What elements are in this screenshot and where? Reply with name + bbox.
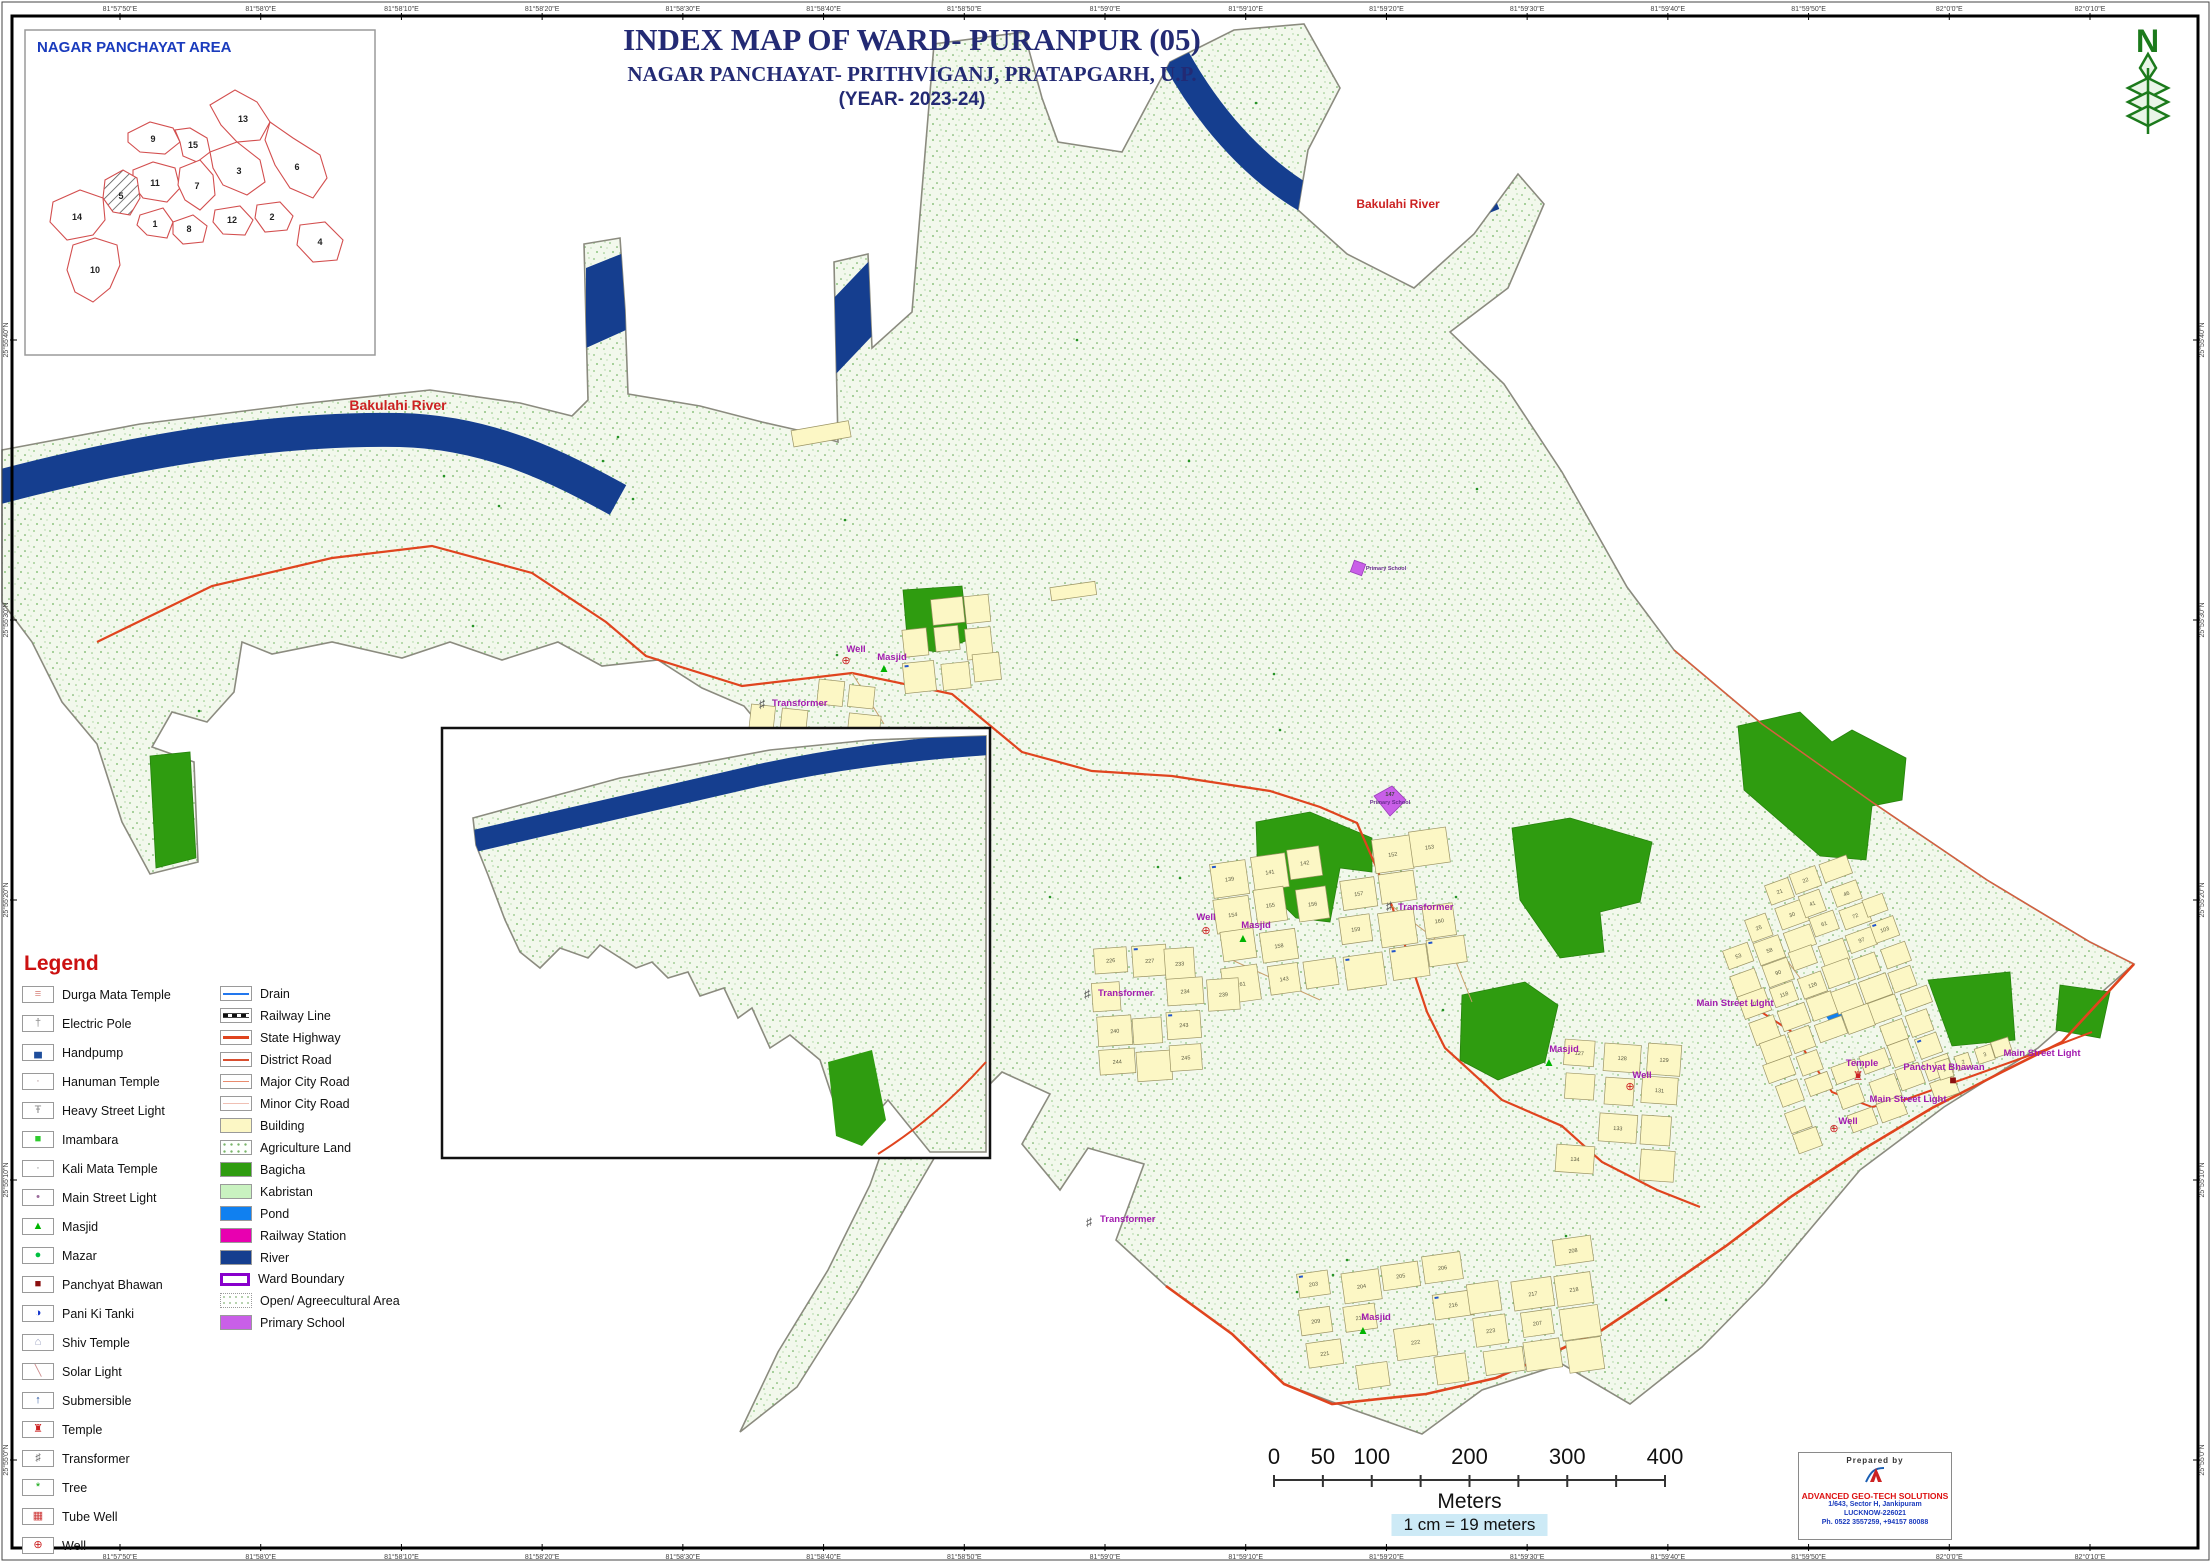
tree-dot bbox=[19, 1069, 22, 1072]
graticule-label-top: 81°57'50"E bbox=[103, 5, 138, 13]
legend-item-label: Tube Well bbox=[62, 1510, 118, 1524]
graticule-label-bottom: 81°59'0"E bbox=[1090, 1553, 1121, 1561]
legend-item: †Electric Pole bbox=[22, 1015, 220, 1032]
parcel-number: 128 bbox=[1617, 1056, 1627, 1063]
map-year: (YEAR- 2023-24) bbox=[412, 89, 1412, 111]
parcel-number: 221 bbox=[1320, 1351, 1330, 1358]
legend-item: Kabristan bbox=[220, 1184, 416, 1199]
legend-item-label: Open/ Agreecultural Area bbox=[260, 1294, 400, 1308]
tree-icon: * bbox=[22, 1479, 54, 1496]
tree-dot bbox=[467, 1420, 470, 1423]
legend-item-label: Pani Ki Tanki bbox=[62, 1307, 134, 1321]
detail-inset bbox=[442, 728, 990, 1158]
tree-dot bbox=[198, 710, 201, 713]
legend-item: ▲Masjid bbox=[22, 1218, 220, 1235]
overview-ward-number: 15 bbox=[188, 140, 198, 150]
tree-dot bbox=[625, 675, 628, 678]
transformer-icon: ♯ bbox=[759, 697, 765, 711]
feature-label: Transformer bbox=[1098, 988, 1154, 999]
mazar-icon: ● bbox=[22, 1247, 54, 1264]
imambara-icon: ■ bbox=[22, 1131, 54, 1148]
legend-item: River bbox=[220, 1250, 416, 1265]
legend-item-label: Bagicha bbox=[260, 1163, 305, 1177]
overview-ward-number: 10 bbox=[90, 265, 100, 275]
parcel-number: 206 bbox=[1438, 1265, 1448, 1272]
tree-dot bbox=[1830, 566, 1833, 569]
building-parcel bbox=[1564, 1073, 1595, 1100]
main-street-light-icon: • bbox=[22, 1189, 54, 1206]
river-label: Bakulahi River bbox=[349, 397, 447, 413]
parcel-number: 226 bbox=[1106, 958, 1116, 965]
map-title: INDEX MAP OF WARD- PURANPUR (05) bbox=[412, 22, 1412, 58]
tree-dot bbox=[2061, 303, 2064, 306]
legend-item: Ward Boundary bbox=[220, 1272, 416, 1286]
durga-mata-temple-icon: ≡ bbox=[22, 986, 54, 1003]
overview-ward-number: 14 bbox=[72, 212, 82, 222]
feature-label: Transformer bbox=[1398, 902, 1454, 913]
legend-item-label: Railway Line bbox=[260, 1009, 331, 1023]
legend-item-label: Hanuman Temple bbox=[62, 1075, 160, 1089]
legend-item-label: Transformer bbox=[62, 1452, 130, 1466]
feature-label: Main Street Light bbox=[1696, 998, 1774, 1009]
legend-item-label: District Road bbox=[260, 1053, 332, 1067]
graticule-label-top: 82°0'10"E bbox=[2075, 5, 2106, 13]
parcel-number: 205 bbox=[1396, 1273, 1406, 1280]
overview-ward-number: 11 bbox=[150, 178, 160, 188]
tree-dot bbox=[1665, 1299, 1668, 1302]
tree-dot bbox=[498, 505, 501, 508]
school-icon: ■ bbox=[1355, 562, 1360, 572]
river-swatch bbox=[220, 1250, 252, 1265]
tree-dot bbox=[1212, 1413, 1215, 1416]
railway-swatch bbox=[220, 1008, 252, 1023]
well-icon: ⊕ bbox=[1625, 1081, 1634, 1093]
legend-item-label: Temple bbox=[62, 1423, 102, 1437]
tree-dot bbox=[1476, 488, 1479, 491]
graticule-label-top: 81°59'10"E bbox=[1228, 5, 1263, 13]
building-swatch bbox=[220, 1118, 252, 1133]
legend-item: Railway Station bbox=[220, 1228, 416, 1243]
feature-label: Masjid bbox=[1241, 920, 1271, 931]
tree-dot bbox=[1455, 896, 1458, 899]
transformer-icon: ♯ bbox=[1086, 1215, 1092, 1229]
graticule-label-top: 81°58'10"E bbox=[384, 5, 419, 13]
graticule-label-top: 81°59'40"E bbox=[1651, 5, 1686, 13]
legend-item: ·Hanuman Temple bbox=[22, 1073, 220, 1090]
tree-dot bbox=[1273, 673, 1276, 676]
well-icon: ⊕ bbox=[841, 655, 850, 667]
parcel-number: 133 bbox=[1613, 1126, 1623, 1133]
graticule-label-top: 81°59'30"E bbox=[1510, 5, 1545, 13]
legend-item: ⊕Well bbox=[22, 1537, 220, 1554]
overview-ward-number: 12 bbox=[227, 215, 237, 225]
legend-item-label: Main Street Light bbox=[62, 1191, 157, 1205]
legend-item: ·Kali Mata Temple bbox=[22, 1160, 220, 1177]
legend-item-label: Building bbox=[260, 1119, 304, 1133]
feature-label: Transformer bbox=[772, 698, 828, 709]
tree-dot bbox=[7, 704, 10, 707]
legend-item: ◑Pani Ki Tanki bbox=[22, 1305, 220, 1322]
masjid-icon: ▲ bbox=[22, 1218, 54, 1235]
legend-item: ≡Durga Mata Temple bbox=[22, 986, 220, 1003]
company-address-1: 1/643, Sector H, Jankipuram bbox=[1801, 1501, 1949, 1510]
primaryschool-swatch bbox=[220, 1315, 252, 1330]
tree-dot bbox=[1497, 305, 1500, 308]
tree-dot bbox=[1981, 440, 1984, 443]
legend-item: Primary School bbox=[220, 1315, 416, 1330]
building-parcel bbox=[1378, 909, 1418, 948]
overview-ward-number: 13 bbox=[238, 114, 248, 124]
tree-dot bbox=[1742, 237, 1745, 240]
district-swatch bbox=[220, 1052, 252, 1067]
overview-ward-number: 5 bbox=[118, 191, 123, 201]
tree-dot bbox=[632, 498, 635, 501]
overview-ward-number: 4 bbox=[317, 237, 322, 247]
building-parcel bbox=[1483, 1346, 1525, 1375]
shiv-temple-icon: ⌂ bbox=[22, 1334, 54, 1351]
legend-item-label: Drain bbox=[260, 987, 290, 1001]
legend-item-label: Solar Light bbox=[62, 1365, 122, 1379]
feature-label: Well bbox=[1632, 1070, 1651, 1081]
feature-label: Temple bbox=[1846, 1058, 1879, 1069]
transformer-icon: ♯ bbox=[1386, 899, 1392, 913]
building-parcel bbox=[1566, 1337, 1605, 1374]
tree-dot bbox=[1192, 1314, 1195, 1317]
legend-item: ♯Transformer bbox=[22, 1450, 220, 1467]
graticule-label-top: 81°59'0"E bbox=[1090, 5, 1121, 13]
well-icon: ⊕ bbox=[1829, 1123, 1838, 1135]
tree-dot bbox=[602, 460, 605, 463]
tree-dot bbox=[529, 1267, 532, 1270]
handpump-icon bbox=[1168, 1014, 1172, 1016]
solar-light-icon: ╲ bbox=[22, 1363, 54, 1380]
tree-dot bbox=[1033, 1167, 1036, 1170]
legend-item: ╲Solar Light bbox=[22, 1363, 220, 1380]
parcel-number: 143 bbox=[1279, 976, 1289, 983]
building-parcel bbox=[1132, 1017, 1163, 1045]
parcel-number: 129 bbox=[1659, 1057, 1669, 1064]
legend-item: ■Imambara bbox=[22, 1131, 220, 1148]
building-parcel bbox=[1559, 1305, 1602, 1341]
tree-dot bbox=[1924, 345, 1927, 348]
feature-label: 147 bbox=[1385, 792, 1394, 798]
temple-icon: ♜ bbox=[1853, 1069, 1864, 1083]
building-parcel bbox=[1523, 1338, 1563, 1372]
legend-item-label: Kabristan bbox=[260, 1185, 313, 1199]
building-parcel bbox=[941, 661, 971, 690]
building-parcel bbox=[1434, 1353, 1469, 1385]
masjid-icon: ▲ bbox=[878, 661, 890, 675]
parcel-number: 243 bbox=[1179, 1023, 1189, 1030]
scale-tick-label: 300 bbox=[1549, 1444, 1586, 1469]
tree-dot bbox=[626, 197, 629, 200]
tree-dot bbox=[1898, 507, 1901, 510]
feature-label: Well bbox=[1196, 912, 1215, 923]
river-label: Bakulahi River bbox=[1356, 197, 1440, 211]
panchyat-icon: ■ bbox=[1949, 1073, 1956, 1087]
building-parcel bbox=[1303, 958, 1339, 989]
tree-dot bbox=[1834, 706, 1837, 709]
parcel-number: 244 bbox=[1113, 1059, 1123, 1066]
graticule-label-top: 81°58'40"E bbox=[806, 5, 841, 13]
building-parcel bbox=[972, 652, 1001, 682]
masjid-icon: ▲ bbox=[1543, 1055, 1555, 1069]
legend-item-label: Shiv Temple bbox=[62, 1336, 130, 1350]
tree-dot bbox=[1774, 129, 1777, 132]
parcel-number: 234 bbox=[1180, 989, 1190, 996]
parcel-number: 217 bbox=[1528, 1291, 1538, 1298]
scale-tick-label: 50 bbox=[1311, 1444, 1335, 1469]
legend-item-label: Durga Mata Temple bbox=[62, 988, 171, 1002]
graticule-label-bottom: 81°59'40"E bbox=[1651, 1553, 1686, 1561]
electric-pole-icon: † bbox=[22, 1015, 54, 1032]
parcel-number: 240 bbox=[1110, 1029, 1120, 1036]
kabristan-swatch bbox=[220, 1184, 252, 1199]
graticule-label-left: 25°55'10"N bbox=[2, 1162, 10, 1197]
legend-item: Minor City Road bbox=[220, 1096, 416, 1111]
legend-item: Bagicha bbox=[220, 1162, 416, 1177]
legend-item-label: Submersible bbox=[62, 1394, 131, 1408]
building-parcel bbox=[1356, 1361, 1391, 1389]
graticule-label-top: 81°59'50"E bbox=[1791, 5, 1826, 13]
railstation-swatch bbox=[220, 1228, 252, 1243]
building-parcel bbox=[1378, 870, 1417, 904]
scale-bar: 050100200300400Meters1 cm = 19 meters bbox=[1248, 1438, 1728, 1540]
open-swatch bbox=[220, 1293, 252, 1308]
graticule-label-left: 25°55'20"N bbox=[2, 882, 10, 917]
pond-swatch bbox=[220, 1206, 252, 1221]
legend-item-label: Kali Mata Temple bbox=[62, 1162, 158, 1176]
parcel-number: 208 bbox=[1568, 1248, 1578, 1255]
legend-item-label: State Highway bbox=[260, 1031, 341, 1045]
parcel-number: 155 bbox=[1266, 903, 1276, 910]
graticule-label-bottom: 81°58'50"E bbox=[947, 1553, 982, 1561]
overview-ward-number: 9 bbox=[150, 134, 155, 144]
legend-item-label: Heavy Street Light bbox=[62, 1104, 165, 1118]
legend-item: Drain bbox=[220, 986, 416, 1001]
parcel-number: 227 bbox=[1145, 958, 1155, 965]
company-phone: Ph. 0522 3557259, +94157 80088 bbox=[1801, 1519, 1949, 1528]
tree-dot bbox=[2106, 1279, 2109, 1282]
scale-tick-label: 400 bbox=[1647, 1444, 1684, 1469]
legend-item-label: Imambara bbox=[62, 1133, 118, 1147]
legend-item-label: Agriculture Land bbox=[260, 1141, 351, 1155]
parcel-number: 233 bbox=[1175, 961, 1185, 968]
feature-label: Transformer bbox=[1100, 1214, 1156, 1225]
parcel-number: 222 bbox=[1411, 1340, 1421, 1347]
building-parcel bbox=[847, 685, 875, 709]
building-parcel bbox=[934, 625, 961, 652]
legend-item: ●Mazar bbox=[22, 1247, 220, 1264]
tree-dot bbox=[1346, 1259, 1349, 1262]
parcel-number: 156 bbox=[1308, 901, 1318, 908]
parcel-number: 245 bbox=[1181, 1055, 1191, 1062]
legend-area-items: DrainRailway LineState HighwayDistrict R… bbox=[220, 986, 416, 1566]
graticule-label-left: 25°55'30"N bbox=[2, 602, 10, 637]
graticule-label-bottom: 81°58'40"E bbox=[806, 1553, 841, 1561]
legend-item: *Tree bbox=[22, 1479, 220, 1496]
legend-item: Agriculture Land bbox=[220, 1140, 416, 1155]
parcel-number: 209 bbox=[1311, 1318, 1321, 1325]
masjid-icon: ▲ bbox=[1357, 1323, 1369, 1337]
building-parcel bbox=[1389, 944, 1430, 981]
tree-dot bbox=[1565, 1235, 1568, 1238]
feature-label: Main Street Light bbox=[1869, 1094, 1947, 1105]
handpump-icon: ▄ bbox=[22, 1044, 54, 1061]
legend-item: •Main Street Light bbox=[22, 1189, 220, 1206]
overview-inset-title: NAGAR PANCHAYAT AREA bbox=[37, 39, 232, 56]
legend-item-label: River bbox=[260, 1251, 289, 1265]
building-parcel bbox=[1343, 952, 1387, 990]
major-swatch bbox=[220, 1074, 252, 1089]
legend-title: Legend bbox=[24, 952, 422, 976]
temple-icon: ♜ bbox=[22, 1421, 54, 1438]
building-parcel bbox=[964, 594, 991, 624]
legend-item: ♜Temple bbox=[22, 1421, 220, 1438]
agri-swatch bbox=[220, 1140, 252, 1155]
credits-box: Prepared by ADVANCED GEO-TECH SOLUTIONS … bbox=[1798, 1452, 1952, 1540]
tree-dot bbox=[836, 654, 839, 657]
tree-dot bbox=[1332, 1274, 1335, 1277]
prepared-by-label: Prepared by bbox=[1801, 1456, 1949, 1465]
feature-label: Primary School bbox=[1366, 566, 1407, 572]
parcel-number: 203 bbox=[1309, 1281, 1319, 1288]
legend-item-label: Pond bbox=[260, 1207, 289, 1221]
building-parcel bbox=[1136, 1050, 1173, 1082]
legend-item: Open/ Agreecultural Area bbox=[220, 1293, 416, 1308]
overview-ward-number: 3 bbox=[236, 166, 241, 176]
title-block: INDEX MAP OF WARD- PURANPUR (05) NAGAR P… bbox=[412, 22, 1412, 111]
tree-dot bbox=[1179, 877, 1182, 880]
parcel-number: 160 bbox=[1434, 918, 1444, 925]
parcel-number: 239 bbox=[1219, 992, 1229, 999]
tree-dot bbox=[1188, 460, 1191, 463]
parcel-number: 159 bbox=[1351, 927, 1361, 934]
legend-item: ▄Handpump bbox=[22, 1044, 220, 1061]
legend-item-label: Tree bbox=[62, 1481, 87, 1495]
panchyat-bhawan-icon: ■ bbox=[22, 1276, 54, 1293]
tree-dot bbox=[844, 519, 847, 522]
graticule-label-left: 25°55'40"N bbox=[2, 322, 10, 357]
legend-item: District Road bbox=[220, 1052, 416, 1067]
graticule-label-bottom: 81°59'50"E bbox=[1791, 1553, 1826, 1561]
graticule-label-top: 82°0'0"E bbox=[1936, 5, 1963, 13]
legend-item-label: Ward Boundary bbox=[258, 1272, 344, 1286]
map-sheet: 2122253041465358617290971031071181261231… bbox=[0, 0, 2211, 1564]
tree-dot bbox=[676, 675, 679, 678]
legend-item: Building bbox=[220, 1118, 416, 1133]
legend-point-items: ≡Durga Mata Temple†Electric Pole▄Handpum… bbox=[22, 986, 220, 1566]
legend-item-label: Primary School bbox=[260, 1316, 345, 1330]
building-parcel bbox=[1466, 1281, 1502, 1315]
building-parcel bbox=[1640, 1115, 1672, 1146]
heavy-street-light-icon: Ŧ bbox=[22, 1102, 54, 1119]
minor-swatch bbox=[220, 1096, 252, 1111]
parcel-number: 154 bbox=[1228, 912, 1238, 919]
wardboundary-swatch bbox=[220, 1273, 250, 1286]
overview-ward-number: 2 bbox=[269, 212, 274, 222]
scale-tick-label: 0 bbox=[1268, 1444, 1280, 1469]
drain-swatch bbox=[220, 986, 252, 1001]
tree-dot bbox=[1997, 247, 2000, 250]
company-address-2: LUCKNOW-226021 bbox=[1801, 1510, 1949, 1519]
tree-dot bbox=[1442, 1009, 1445, 1012]
transformer-icon: ♯ bbox=[22, 1450, 54, 1467]
legend-item: ■Panchyat Bhawan bbox=[22, 1276, 220, 1293]
legend-item-label: Railway Station bbox=[260, 1229, 346, 1243]
parcel-number: 153 bbox=[1425, 844, 1435, 851]
tree-dot bbox=[1580, 480, 1583, 483]
legend-item-label: Well bbox=[62, 1539, 86, 1553]
feature-label: Main Street Light bbox=[2003, 1048, 2081, 1059]
submersible-icon: ↑ bbox=[22, 1392, 54, 1409]
parcel-number: 216 bbox=[1448, 1302, 1458, 1309]
graticule-label-top: 81°59'20"E bbox=[1369, 5, 1404, 13]
north-arrow-icon: N bbox=[2128, 23, 2168, 134]
graticule-label-top: 81°58'30"E bbox=[666, 5, 701, 13]
parcel-number: 152 bbox=[1388, 852, 1398, 859]
tree-dot bbox=[1076, 339, 1079, 342]
tree-dot bbox=[443, 475, 446, 478]
bagicha-swatch bbox=[220, 1162, 252, 1177]
handpump-icon bbox=[1134, 948, 1138, 950]
overview-inset: NAGAR PANCHAYAT AREA 9151336117514181224… bbox=[25, 30, 375, 355]
overview-ward-number: 6 bbox=[294, 162, 299, 172]
legend-item: ⌂Shiv Temple bbox=[22, 1334, 220, 1351]
parcel-number: 131 bbox=[1655, 1088, 1665, 1095]
tree-dot bbox=[1049, 896, 1052, 899]
legend-item-label: Handpump bbox=[62, 1046, 123, 1060]
feature-label: Well bbox=[1838, 1116, 1857, 1127]
scale-note: 1 cm = 19 meters bbox=[1404, 1515, 1536, 1534]
graticule-label-bottom: 81°58'20"E bbox=[525, 1553, 560, 1561]
overview-ward-number: 1 bbox=[152, 219, 157, 229]
company-logo-icon bbox=[1863, 1465, 1887, 1485]
tree-dot bbox=[1296, 1291, 1299, 1294]
graticule-label-bottom: 81°59'20"E bbox=[1369, 1553, 1404, 1561]
graticule-label-bottom: 81°59'10"E bbox=[1228, 1553, 1263, 1561]
parcel-number: 141 bbox=[1265, 869, 1275, 876]
graticule-label-top: 81°58'0"E bbox=[245, 5, 276, 13]
building-parcel bbox=[1639, 1149, 1675, 1182]
overview-ward-number: 8 bbox=[186, 224, 191, 234]
tree-dot bbox=[417, 745, 420, 748]
handpump-icon bbox=[904, 665, 908, 667]
parcel-number: 157 bbox=[1354, 891, 1364, 898]
tree-dot bbox=[832, 239, 835, 242]
feature-label: Masjid bbox=[877, 652, 907, 663]
scale-tick-label: 200 bbox=[1451, 1444, 1488, 1469]
legend-item-label: Masjid bbox=[62, 1220, 98, 1234]
transformer-icon: ♯ bbox=[1084, 987, 1090, 1001]
legend-item: ↑Submersible bbox=[22, 1392, 220, 1409]
feature-label: Primary School bbox=[1370, 800, 1411, 806]
graticule-label-bottom: 81°58'30"E bbox=[666, 1553, 701, 1561]
tree-dot bbox=[472, 625, 475, 628]
parcel-number: 204 bbox=[1357, 1284, 1367, 1291]
graticule-label-bottom: 82°0'0"E bbox=[1936, 1553, 1963, 1561]
legend-item: Pond bbox=[220, 1206, 416, 1221]
legend-item: ▦Tube Well bbox=[22, 1508, 220, 1525]
hanuman-temple-icon: · bbox=[22, 1073, 54, 1090]
tree-dot bbox=[565, 144, 568, 147]
graticule-label-top: 81°58'20"E bbox=[525, 5, 560, 13]
legend-item: Major City Road bbox=[220, 1074, 416, 1089]
building-parcel bbox=[931, 596, 965, 625]
building-parcel bbox=[1426, 935, 1467, 967]
graticule-label-top: 81°58'50"E bbox=[947, 5, 982, 13]
parcel-number: 207 bbox=[1533, 1321, 1543, 1328]
